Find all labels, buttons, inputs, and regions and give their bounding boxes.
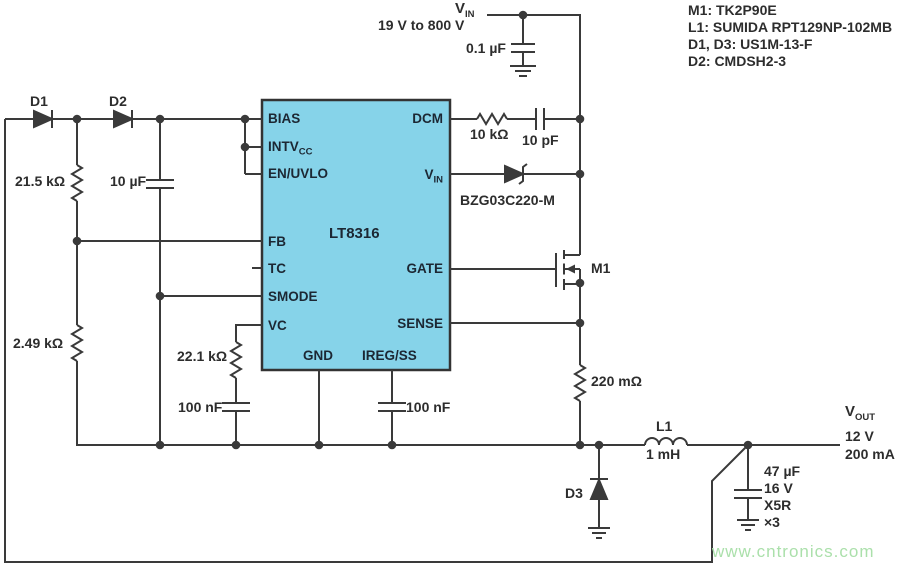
pin-enuvlo: EN/UVLO xyxy=(268,166,328,182)
d2-diode-symbol xyxy=(114,110,132,128)
inductor-l1-symbol xyxy=(645,438,687,445)
d1-diode-symbol xyxy=(34,110,52,128)
pin-vc: VC xyxy=(268,318,287,334)
cap-10p-symbol xyxy=(536,108,544,130)
cap-10u-symbol xyxy=(146,180,174,188)
cap-47u-label: 47 µF 16 V X5R ×3 xyxy=(764,463,800,531)
cap-100n-ss-symbol xyxy=(378,403,406,411)
cap-47u-line: 47 µF xyxy=(764,463,800,480)
zener-diode-symbol xyxy=(505,164,527,184)
resistor-10k-symbol xyxy=(477,114,507,124)
cap-0u1-symbol xyxy=(511,44,535,52)
pin-sense: SENSE xyxy=(397,316,443,332)
cap-100n-vc-label: 100 nF xyxy=(178,399,222,416)
pin-fb: FB xyxy=(268,234,286,250)
pin-iregss: IREG/SS xyxy=(362,348,417,364)
parts-list-line: L1: SUMIDA RPT129NP-102MB xyxy=(688,19,892,36)
pin-dcm: DCM xyxy=(412,111,443,127)
parts-list-line: D2: CMDSH2-3 xyxy=(688,53,892,70)
resistor-220m-label: 220 mΩ xyxy=(591,373,642,390)
d1-label: D1 xyxy=(30,93,48,110)
cap-47u-line: ×3 xyxy=(764,514,800,531)
vout-current-label: 200 mA xyxy=(845,446,895,463)
cap-47u-line: X5R xyxy=(764,497,800,514)
resistor-21k5-symbol xyxy=(72,165,82,201)
cap-100n-ss-label: 100 nF xyxy=(406,399,450,416)
l1-value-label: 1 mH xyxy=(646,446,680,463)
parts-list-line: D1, D3: US1M-13-F xyxy=(688,36,892,53)
resistor-10k-label: 10 kΩ xyxy=(470,126,508,143)
cap-100n-vc-symbol xyxy=(222,403,250,411)
vout-voltage-label: 12 V xyxy=(845,428,874,445)
parts-list: M1: TK2P90E L1: SUMIDA RPT129NP-102MB D1… xyxy=(688,2,892,70)
cap-47u-line: 16 V xyxy=(764,480,800,497)
pin-intvcc: INTVCC xyxy=(268,139,313,158)
cap-10u-label: 10 µF xyxy=(110,173,146,190)
pin-tc: TC xyxy=(268,261,286,277)
vin-range-label: 19 V to 800 V xyxy=(378,17,464,34)
watermark: www.cntronics.com xyxy=(712,542,874,562)
d2-label: D2 xyxy=(109,93,127,110)
pin-smode: SMODE xyxy=(268,289,318,305)
zener-label: BZG03C220-M xyxy=(460,192,555,209)
resistor-220m-symbol xyxy=(575,365,585,401)
ic-name: LT8316 xyxy=(329,225,380,243)
cap-10p-label: 10 pF xyxy=(522,132,559,149)
pin-gnd: GND xyxy=(303,348,333,364)
resistor-22k1-symbol xyxy=(231,342,241,378)
d3-label: D3 xyxy=(565,485,583,502)
circuit-schematic: VIN 19 V to 800 V 0.1 µF M1: TK2P90E L1:… xyxy=(0,0,900,569)
d3-diode-symbol xyxy=(590,479,608,499)
resistor-22k1-label: 22.1 kΩ xyxy=(177,348,227,365)
cap-47u-symbol xyxy=(734,490,762,498)
pin-vin: VIN xyxy=(424,167,443,186)
resistor-2k49-label: 2.49 kΩ xyxy=(13,335,63,352)
resistor-2k49-symbol xyxy=(72,325,82,361)
pin-bias: BIAS xyxy=(268,111,300,127)
cap-0u1-label: 0.1 µF xyxy=(466,40,506,57)
l1-label: L1 xyxy=(656,418,672,435)
resistor-21k5-label: 21.5 kΩ xyxy=(15,173,65,190)
parts-list-line: M1: TK2P90E xyxy=(688,2,892,19)
pin-gate: GATE xyxy=(407,261,444,277)
vout-label: VOUT xyxy=(845,403,875,423)
m1-label: M1 xyxy=(591,260,610,277)
